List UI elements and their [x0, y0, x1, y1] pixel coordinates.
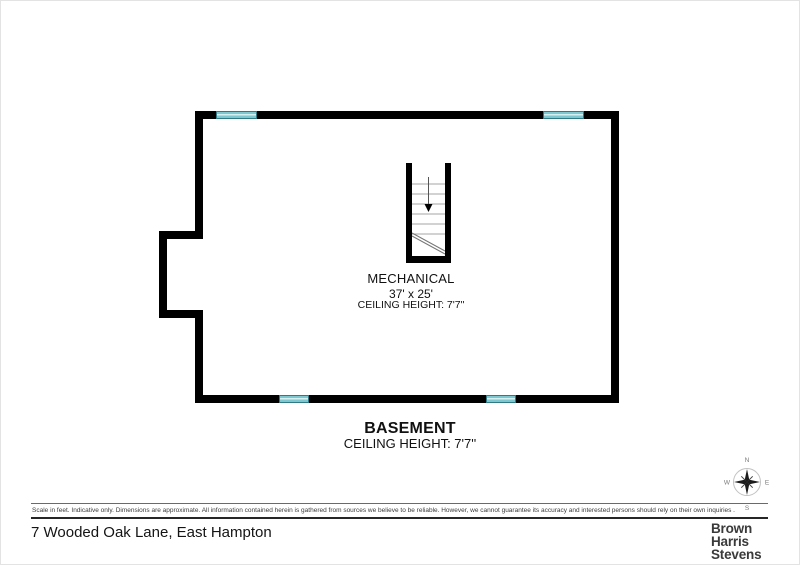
room-label: MECHANICAL 37' x 25' CEILING HEIGHT: 7'7… [311, 271, 511, 311]
divider-thin [31, 503, 768, 504]
floor-name: BASEMENT [310, 420, 510, 437]
floor-label: BASEMENT CEILING HEIGHT: 7'7'' [310, 420, 510, 450]
disclaimer-text: Scale in feet. Indicative only. Dimensio… [32, 507, 772, 514]
stair-break-line [412, 233, 445, 251]
brokerage-logo: Brown Harris Stevens [711, 522, 761, 561]
compass-west-label: W [724, 480, 731, 487]
divider-thick [31, 517, 768, 519]
bump-out-opening [195, 239, 203, 310]
room-ceiling-height: CEILING HEIGHT: 7'7" [311, 300, 511, 311]
window [216, 111, 257, 119]
window [486, 395, 516, 403]
property-address: 7 Wooded Oak Lane, East Hampton [31, 524, 272, 541]
floor-ceiling-height: CEILING HEIGHT: 7'7'' [310, 437, 510, 450]
floorplan-page: MECHANICAL 37' x 25' CEILING HEIGHT: 7'7… [0, 0, 800, 565]
stair-treads [412, 163, 445, 256]
room-name: MECHANICAL [311, 271, 511, 287]
staircase [406, 163, 451, 263]
brand-line: Stevens [711, 548, 761, 561]
compass-east-label: E [765, 480, 770, 487]
window [543, 111, 584, 119]
window [279, 395, 309, 403]
compass-north-label: N [745, 457, 750, 464]
